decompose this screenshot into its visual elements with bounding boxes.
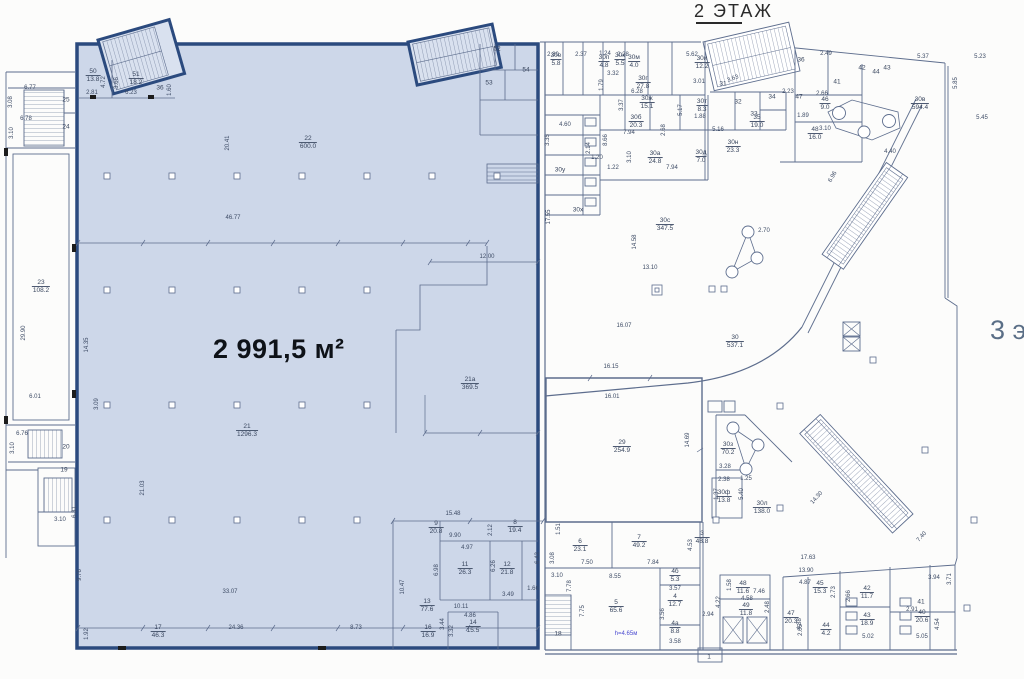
- dimension-label: 2.66: [846, 590, 852, 602]
- dimension-label: 21.03: [140, 480, 146, 495]
- dimension-label: 5.23: [974, 54, 986, 60]
- dimension-label: 6.31: [72, 506, 78, 518]
- room-label: 211296.3: [236, 423, 258, 439]
- dimension-label: 5.05: [916, 634, 928, 640]
- dimension-label: 4.54: [935, 618, 941, 630]
- room-label: 412.7: [668, 593, 683, 609]
- dimension-label: 17.55: [546, 209, 552, 224]
- room-label: 4515.3: [813, 580, 828, 596]
- room-label: 18: [554, 630, 561, 637]
- page-title: 2 ЭТАЖ: [694, 1, 773, 22]
- dimension-label: 3.10: [551, 573, 563, 579]
- room-label: 30л138.0: [753, 500, 771, 516]
- dimension-label: 7.50: [581, 560, 593, 566]
- room-label: 30х: [573, 206, 583, 213]
- dimension-label: 3.66: [114, 77, 120, 89]
- dimension-label: 3.32: [449, 625, 455, 637]
- room-label: 1746.3: [151, 624, 166, 640]
- room-label: 30а24.8: [648, 150, 663, 166]
- dimension-label: 6.01: [29, 394, 41, 400]
- dimension-label: 7.40: [916, 531, 928, 544]
- dimension-label: 2.91: [906, 607, 918, 613]
- note-label: h=4.65м: [615, 631, 638, 637]
- dimension-label: 1.92: [84, 628, 90, 640]
- room-label: 23108.2: [32, 279, 50, 295]
- dimension-label: 4.60: [559, 122, 571, 128]
- room-label: 4318.9: [860, 612, 875, 628]
- dimension-label: 1.20: [591, 155, 603, 161]
- room-label: 1: [707, 653, 711, 660]
- dimension-label: 3.32: [607, 71, 619, 77]
- room-label: 4911.8: [739, 602, 753, 618]
- room-label: 565.6: [609, 599, 624, 615]
- dimension-label: 4.22: [716, 596, 722, 608]
- floorplan-page: 252423108.22019365013.85118.252535422600…: [0, 0, 1024, 679]
- dimension-label: 3.01: [693, 79, 705, 85]
- dimension-label: 2.38: [718, 477, 730, 483]
- room-label: 469.0: [819, 96, 830, 112]
- dimension-label: 5.17: [678, 104, 684, 116]
- room-label: 52: [493, 45, 500, 52]
- dimension-label: 1.58: [727, 579, 733, 591]
- dimension-label: 6.43: [535, 552, 541, 564]
- room-label: 819.4: [508, 519, 523, 535]
- room-label: 44: [872, 68, 879, 75]
- room-label: 4б5.3: [669, 568, 680, 584]
- dimension-label: 7.94: [666, 165, 678, 171]
- dimension-label: 5.62: [686, 52, 698, 58]
- room-label: 30т8.3: [696, 98, 707, 114]
- dimension-label: 2.49: [820, 51, 832, 57]
- dimension-label: 12.00: [479, 254, 494, 260]
- dimension-label: 2.68: [661, 124, 667, 136]
- room-label: 30у: [555, 166, 565, 173]
- dimension-label: 2.66: [816, 91, 828, 97]
- dimension-label: 3.08: [8, 96, 14, 108]
- room-label: 4211.7: [860, 585, 874, 601]
- dimension-label: 1.22: [607, 165, 619, 171]
- room-label: 1221.8: [500, 561, 515, 577]
- room-label: 25: [62, 96, 69, 103]
- dimension-label: 4.40: [884, 149, 896, 155]
- room-label: 31: [719, 80, 726, 87]
- dimension-label: 14.58: [632, 234, 638, 249]
- dimension-label: 33.07: [222, 589, 237, 595]
- room-label: 34: [768, 93, 775, 100]
- dimension-label: 3.37: [619, 99, 625, 111]
- dimension-label: 2.05: [798, 624, 804, 636]
- dimension-label: 46.77: [225, 215, 240, 221]
- dimension-label: 14.30: [810, 490, 825, 505]
- dimension-label: 16.15: [603, 364, 618, 370]
- dimension-label: 4.97: [461, 545, 473, 551]
- dimension-label: 1.79: [599, 79, 605, 91]
- dimension-label: 2.73: [831, 586, 837, 598]
- dimension-label: 8.73: [350, 625, 362, 631]
- dimension-label: 3.58: [669, 639, 681, 645]
- dimension-label: 6.98: [434, 564, 440, 576]
- dimension-label: 15.48: [445, 511, 460, 517]
- room-label: 19: [60, 466, 67, 473]
- room-label: 53: [485, 79, 492, 86]
- room-label: 47: [795, 93, 802, 100]
- room-label: 30з70.2: [721, 441, 736, 457]
- dimension-label: 2.12: [488, 524, 494, 536]
- room-label: 348.8: [695, 530, 710, 546]
- dimension-label: 16.07: [616, 323, 631, 329]
- dimension-label: 3.10: [819, 126, 831, 132]
- room-label: 30б20.3: [629, 114, 644, 130]
- dimension-label: 5.37: [917, 54, 929, 60]
- dimension-label: 5.16: [712, 127, 724, 133]
- dimension-label: 5.85: [953, 77, 959, 89]
- dimension-label: 1.51: [556, 523, 562, 535]
- dimension-label: 1.25: [740, 476, 752, 482]
- dimension-label: 5.45: [976, 115, 988, 121]
- dimension-label: 6.26: [491, 560, 497, 572]
- room-label: 21а369.5: [461, 376, 479, 392]
- labels-layer: 252423108.22019365013.85118.252535422600…: [0, 0, 1024, 679]
- dimension-label: 7.94: [623, 130, 635, 136]
- dimension-label: 3.28: [719, 464, 731, 470]
- dimension-label: 6.23: [125, 90, 137, 96]
- dimension-label: 10.47: [400, 579, 406, 594]
- dimension-label: 3.56: [660, 608, 666, 620]
- dimension-label: 6.78: [20, 116, 32, 122]
- room-label: 920.8: [429, 520, 444, 536]
- dimension-label: 9.76: [77, 569, 83, 581]
- room-label: 29254.9: [613, 439, 631, 455]
- dimension-label: 4.86: [464, 613, 476, 619]
- dimension-label: 14.35: [84, 337, 90, 352]
- room-label: 444.2: [820, 622, 831, 638]
- dimension-label: 5.02: [862, 634, 874, 640]
- dimension-label: 3.10: [627, 151, 633, 163]
- dimension-label: 4.72: [101, 76, 107, 88]
- dimension-label: 4.53: [688, 539, 694, 551]
- dimension-label: 3.49: [502, 592, 514, 598]
- room-label: 41: [833, 78, 840, 85]
- highlight-area-label: 2 991,5 м²: [213, 334, 345, 365]
- dimension-label: 2.37: [575, 52, 587, 58]
- room-label: 749.2: [632, 534, 647, 550]
- dimension-label: 8.66: [603, 134, 609, 146]
- room-label: 1377.6: [420, 598, 435, 614]
- dimension-label: 1.24: [599, 51, 611, 57]
- dimension-label: 13.10: [642, 265, 657, 271]
- room-label: 4а8.8: [669, 620, 680, 636]
- dimension-label: 4.58: [741, 596, 753, 602]
- dimension-label: 24.36: [228, 625, 243, 631]
- dimension-label: 10.11: [454, 604, 469, 610]
- room-label: 42: [858, 64, 865, 71]
- room-label: 4811.6: [736, 580, 750, 596]
- dimension-label: 3.71: [947, 573, 953, 585]
- dimension-label: 1.88: [694, 114, 706, 120]
- next-floor-label: 3 э: [990, 315, 1024, 346]
- dimension-label: 2.23: [782, 89, 794, 95]
- dimension-label: 2.28: [617, 52, 629, 58]
- dimension-label: 7.84: [647, 560, 659, 566]
- room-label: 41: [917, 598, 924, 605]
- room-label: 5118.2: [129, 71, 144, 87]
- dimension-label: 1.66: [527, 586, 539, 592]
- room-label: 30с347.5: [656, 217, 674, 233]
- dimension-label: 3.57: [669, 586, 681, 592]
- dimension-label: 29.90: [21, 325, 27, 340]
- page-title-underline: [696, 22, 742, 24]
- room-label: 30ж15.1: [640, 95, 655, 111]
- dimension-label: 8.55: [609, 574, 621, 580]
- room-label: 30н23.3: [726, 139, 741, 155]
- room-label: 30537.1: [726, 334, 744, 350]
- room-label: 1616.9: [421, 624, 436, 640]
- dimension-label: 2.14: [586, 142, 592, 154]
- dimension-label: 1.60: [167, 84, 173, 96]
- dimension-label: 2.81: [86, 90, 98, 96]
- dimension-label: 2.80: [547, 52, 559, 58]
- room-label: 623.1: [573, 538, 588, 554]
- dimension-label: 3.35: [545, 134, 551, 146]
- room-label: 30м4.0: [628, 54, 640, 70]
- room-label: 54: [522, 66, 529, 73]
- dimension-label: 1.37: [714, 488, 720, 500]
- dimension-label: 6.28: [631, 89, 643, 95]
- dimension-label: 7.75: [580, 605, 586, 617]
- room-label: 24: [62, 123, 69, 130]
- dimension-label: 9.90: [449, 533, 461, 539]
- dimension-label: 16.01: [604, 394, 619, 400]
- room-label: 3519.0: [750, 114, 765, 130]
- dimension-label: 3.10: [10, 442, 16, 454]
- room-label: 1126.3: [458, 561, 473, 577]
- dimension-label: 3.08: [550, 552, 556, 564]
- dimension-label: 5.40: [739, 488, 745, 500]
- dimension-label: 3.44: [440, 618, 446, 630]
- room-label: 22600.0: [299, 135, 317, 151]
- dimension-label: 7.78: [567, 580, 573, 592]
- dimension-label: 3.09: [94, 398, 100, 410]
- dimension-label: 6.76: [16, 431, 28, 437]
- dimension-label: 6.96: [827, 170, 838, 183]
- dimension-label: 14.69: [685, 432, 691, 447]
- dimension-label: 3.63: [726, 74, 739, 84]
- room-label: 5013.8: [86, 68, 101, 84]
- dimension-label: 3.94: [928, 575, 940, 581]
- dimension-label: 6.77: [24, 85, 36, 91]
- dimension-label: 20.41: [225, 135, 231, 150]
- dimension-label: 3.10: [54, 517, 66, 523]
- room-label: 20: [62, 443, 69, 450]
- room-label: 30в594.4: [911, 96, 929, 112]
- room-label: 36: [797, 56, 804, 63]
- dimension-label: 1.89: [797, 113, 809, 119]
- dimension-label: 2.48: [765, 601, 771, 613]
- dimension-label: 4.87: [799, 580, 811, 586]
- dimension-label: 3.10: [9, 127, 15, 139]
- room-label: 32: [734, 98, 741, 105]
- dimension-label: 2.94: [702, 612, 714, 618]
- dimension-label: 13.90: [798, 568, 813, 574]
- room-label: 1415.5: [466, 619, 481, 635]
- dimension-label: 7.46: [753, 589, 765, 595]
- dimension-label: 2.70: [758, 228, 770, 234]
- room-label: 30д7.0: [695, 149, 706, 165]
- room-label: 43: [883, 64, 890, 71]
- dimension-label: 17.63: [800, 555, 815, 561]
- room-label: 36: [156, 84, 163, 91]
